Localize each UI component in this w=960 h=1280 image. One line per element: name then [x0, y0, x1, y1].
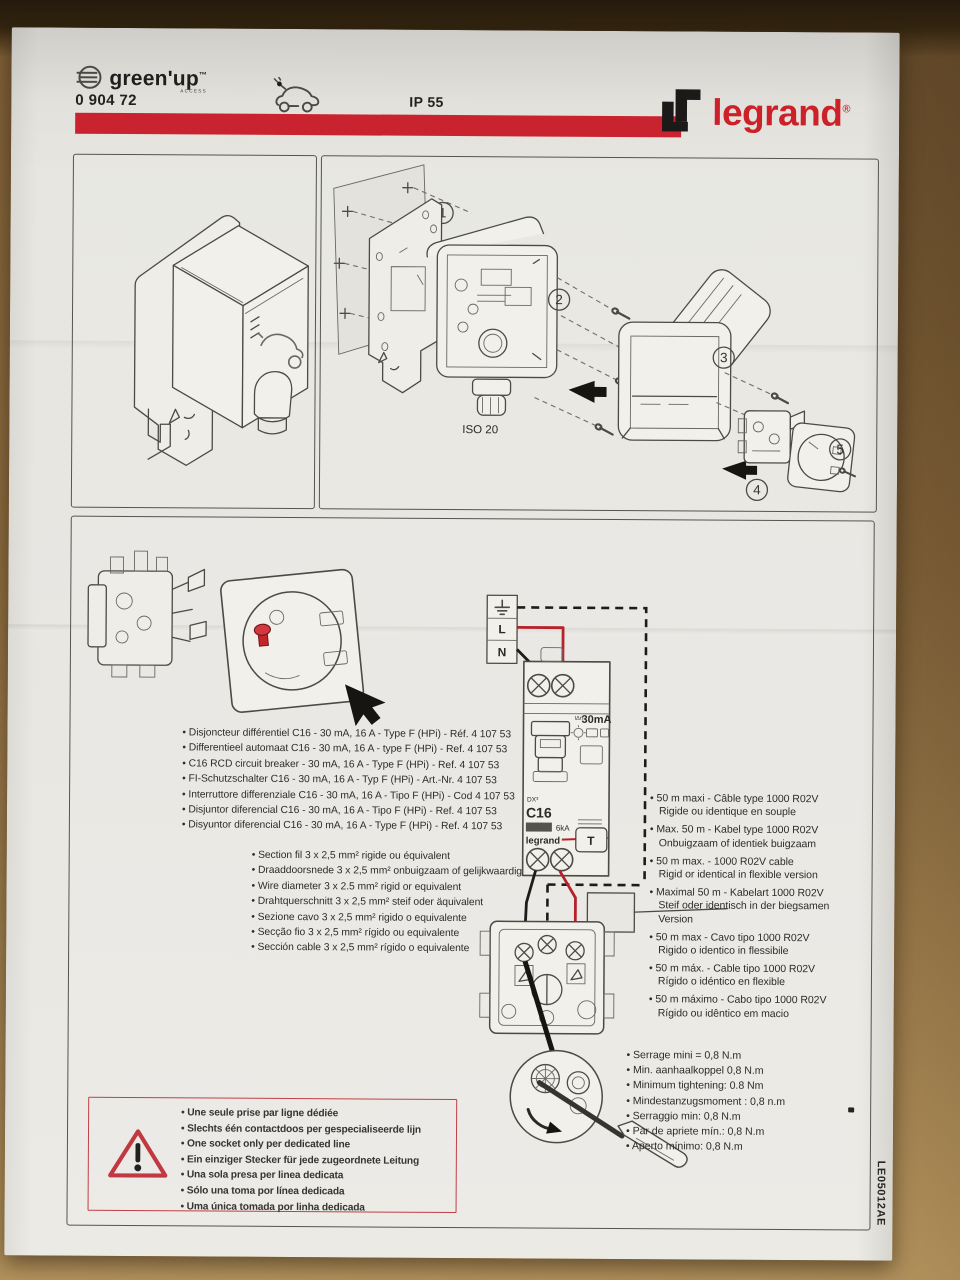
breaker-icons	[571, 725, 609, 740]
list-item: Drahtquerschnitt 3 x 2,5 mm² steif oder …	[251, 894, 561, 911]
supply-terminal-block: L N	[487, 595, 517, 663]
svg-text:T: T	[587, 834, 595, 848]
iso-label: ISO 20	[462, 424, 498, 436]
list-item: FI-Schutzschalter C16 - 30 mA, 16 A - Ty…	[182, 772, 562, 790]
list-item: Serraggio min: 0,8 N.m	[626, 1109, 846, 1126]
list-item: Par de apriete mín.: 0,8 N.m	[626, 1124, 846, 1141]
svg-text:2: 2	[555, 292, 563, 307]
legrand-mark-icon	[659, 87, 703, 133]
assembled-socket-drawing	[72, 155, 316, 508]
svg-text:3: 3	[720, 350, 728, 365]
brand-greenup: green'up™	[109, 67, 207, 91]
list-item: Secção fio 3 x 2,5 mm² rígido ou equival…	[251, 925, 561, 942]
warning-triangle-icon	[107, 1126, 169, 1182]
list-item: 50 m máx. - Cable tipo 1000 R02V Rígido …	[649, 962, 861, 990]
earth-icon	[495, 600, 509, 614]
greenup-globe-icon	[75, 64, 102, 91]
ev-car-icon	[269, 77, 323, 117]
list-item: Sezione cavo 3 x 2,5 mm² rigido o equiva…	[251, 909, 561, 926]
product-reference: 0 904 72	[75, 92, 137, 109]
socket-frontplate-drawing	[75, 529, 411, 746]
torque-spec-list: Serrage mini = 0,8 N.m Min. aanhaalkoppe…	[626, 1048, 847, 1156]
red-accent-bar	[75, 113, 681, 138]
cover-frame	[618, 322, 731, 441]
svg-text:legrand: legrand	[526, 835, 561, 846]
cable-spec-list: 50 m maxi - Câble type 1000 R02V Rigide …	[649, 792, 862, 1026]
detail-leader	[525, 961, 554, 1051]
insert-arrow	[722, 461, 757, 480]
list-item: Una sola presa per linea dedicata	[181, 1168, 453, 1185]
step-4-badge: 4	[746, 479, 767, 500]
svg-text:30mA: 30mA	[582, 714, 612, 726]
panel-exploded-view: 1 ISO	[319, 155, 879, 512]
insert-arrow	[568, 381, 606, 403]
list-item: Ein einziger Stecker für jede zugeordnet…	[181, 1152, 453, 1169]
ip-rating: IP 55	[409, 94, 444, 110]
greenup-logo: green'up™ ACCESS	[75, 64, 207, 94]
phase-wire-top	[517, 627, 563, 673]
registration-mark	[848, 1107, 854, 1112]
svg-text:4: 4	[753, 482, 761, 497]
mechanism-cluster	[88, 551, 207, 678]
front-plate	[220, 569, 364, 713]
svg-text:5: 5	[836, 442, 844, 457]
svg-text:L: L	[498, 622, 505, 636]
list-item: Max. 50 m - Kabel type 1000 R02V Onbuigz…	[650, 824, 862, 852]
list-item: Serrage mini = 0,8 N.m	[626, 1048, 846, 1065]
list-item: Mindestanzugsmoment : 0,8 n.m	[626, 1094, 846, 1111]
legrand-wordmark: legrand®	[712, 90, 850, 131]
list-item: Sólo una toma por línea dedicada	[181, 1183, 453, 1200]
list-item: Slechts één contactdoos per gespecialise…	[181, 1121, 453, 1138]
list-item: 50 m maxi - Câble type 1000 R02V Rigide …	[650, 792, 862, 820]
legrand-logo: legrand®	[659, 87, 850, 134]
list-item: One socket only per dedicated line	[181, 1137, 453, 1154]
test-button: T	[576, 828, 607, 852]
socket-front-plate	[787, 422, 856, 492]
warning-list: Une seule prise par ligne dédiée Slechts…	[181, 1105, 454, 1216]
instruction-sheet: green'up™ ACCESS 0 904 72 IP 55 legrand®	[4, 27, 899, 1260]
list-item: Min. aanhaalkoppel 0,8 N.m	[626, 1063, 846, 1080]
rotation-arrow	[546, 1122, 562, 1134]
warning-box: Une seule prise par ligne dédiée Slechts…	[88, 1097, 458, 1213]
panel-wiring-specs: Disjoncteur différentiel C16 - 30 mA, 16…	[66, 516, 874, 1231]
panel-assembled-view	[71, 154, 317, 509]
exploded-assembly-drawing: 1 ISO	[320, 156, 878, 511]
wire-section-list: Section fil 3 x 2,5 mm² rigide ou équiva…	[251, 848, 562, 958]
junction-callout-box	[587, 893, 634, 932]
list-item: Draaddoorsnede 3 x 2,5 mm² onbuigzaam of…	[252, 863, 562, 880]
document-code: LE05012AE	[874, 1161, 886, 1226]
list-item: 50 m max. - 1000 R02V cable Rigid or ide…	[650, 855, 862, 883]
list-item: Uma única tomada por linha dedicada	[181, 1199, 453, 1216]
list-item: Une seule prise par ligne dédiée	[181, 1105, 453, 1122]
list-item: Minimum tightening: 0.8 Nm	[626, 1078, 846, 1095]
svg-text:IΔn: IΔn	[575, 716, 583, 722]
breaker-terminal	[528, 674, 574, 696]
neutral-wire-top	[517, 649, 539, 673]
list-item: Aperto mínimo: 0,8 N.m	[626, 1139, 846, 1156]
list-item: 50 m max - Cavo tipo 1000 R02V Rigido o …	[649, 931, 861, 959]
list-item: Maximal 50 m - Kabelart 1000 R02V Steif …	[649, 886, 861, 928]
list-item: Disyuntor diferencial C16 - 30 mA, 16 A …	[182, 818, 562, 836]
list-item: 50 m máximo - Cabo tipo 1000 R02V Rígido…	[649, 993, 861, 1021]
svg-text:N: N	[498, 645, 507, 659]
phase-wire-bottom	[559, 871, 575, 946]
breaker-spec-list: Disjoncteur différentiel C16 - 30 mA, 16…	[182, 725, 563, 835]
list-item: Sección cable 3 x 2,5 mm² rígido o equiv…	[251, 940, 561, 957]
